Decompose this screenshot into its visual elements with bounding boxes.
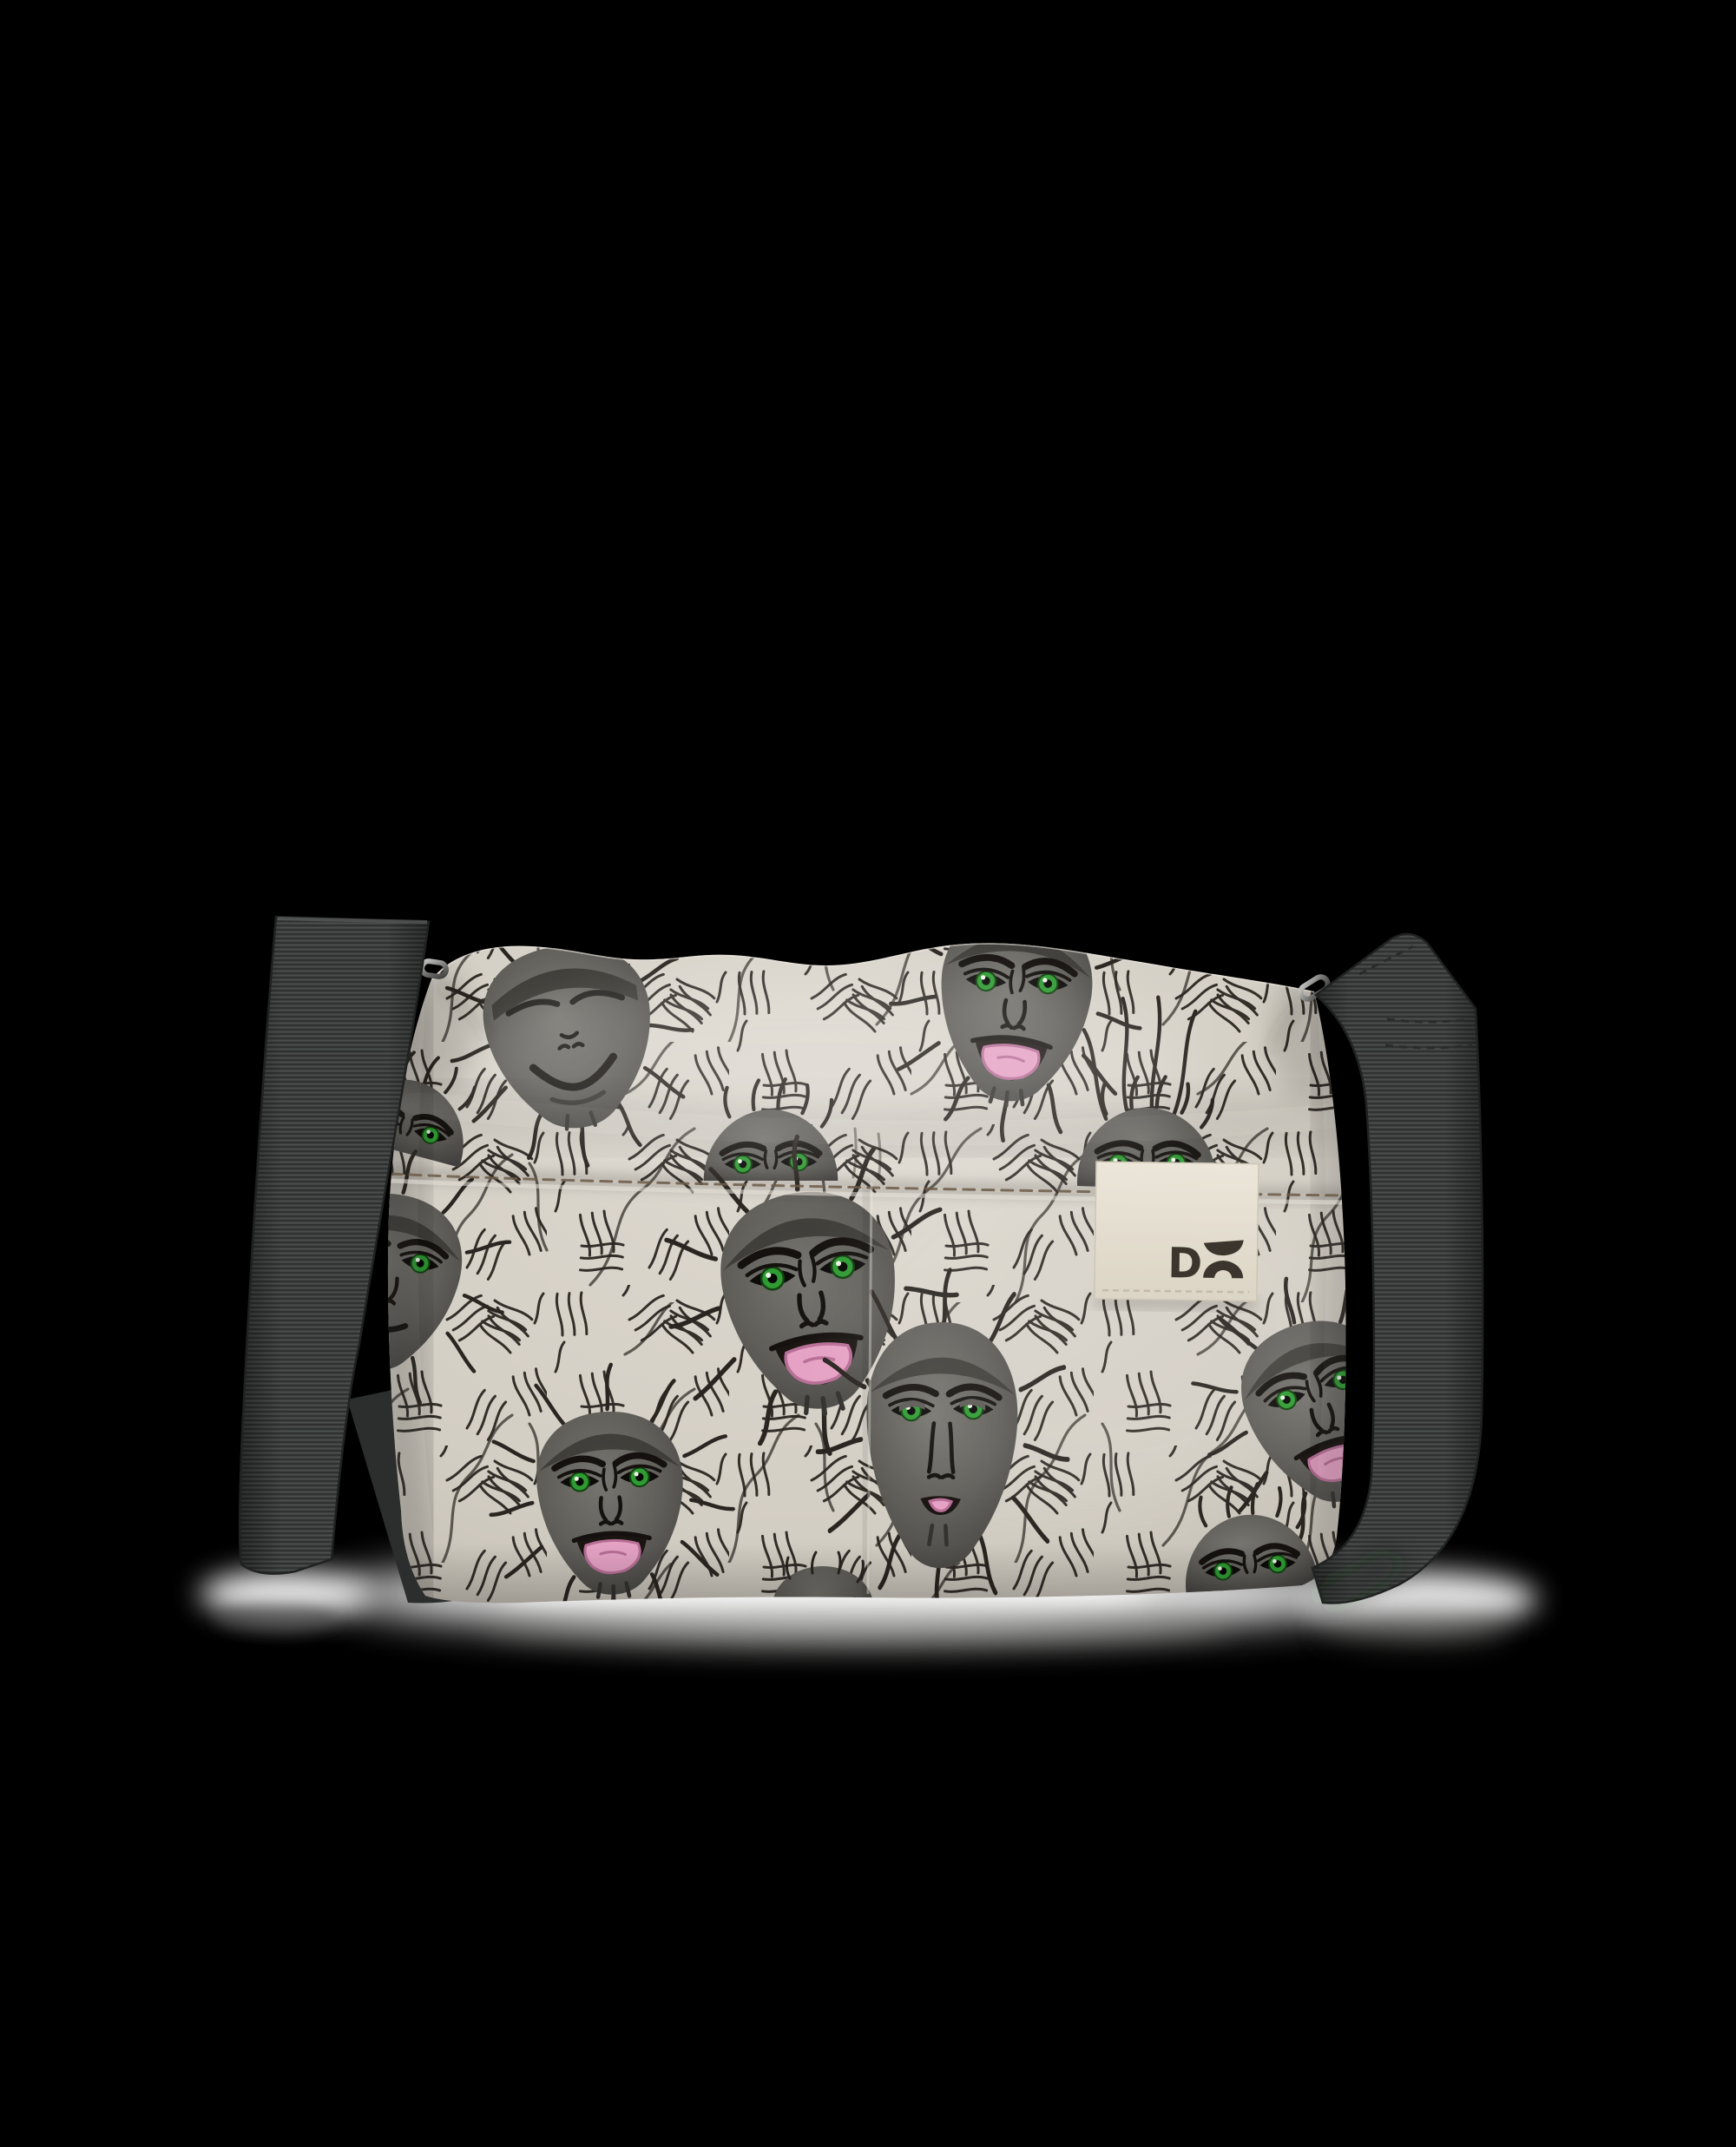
logo-letter-d: D — [1167, 1239, 1203, 1288]
brand-label: D — [1095, 1162, 1259, 1308]
product-photo-stage: D — [0, 0, 1736, 2147]
product-photo: D — [0, 0, 1736, 2147]
